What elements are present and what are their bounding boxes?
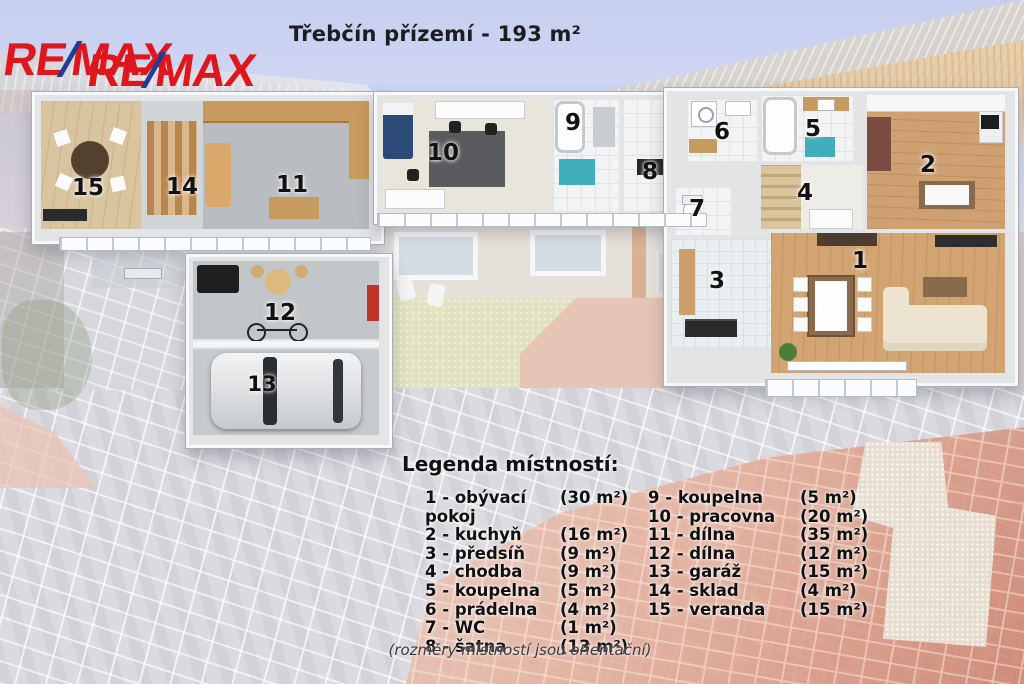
desk <box>435 101 525 119</box>
legend-area: (16 m²) <box>560 526 628 545</box>
desk <box>385 189 445 209</box>
legend-item: 15 - veranda(15 m²) <box>648 601 868 620</box>
legend-column-1: 1 - obývací pokoj(30 m²) 2 - kuchyň(16 m… <box>425 489 628 656</box>
washer-door <box>698 107 714 123</box>
sunroom-windows <box>378 214 706 226</box>
sofa <box>883 305 987 351</box>
legend-label: 10 - pracovna <box>648 508 800 527</box>
legend-label: 14 - sklad <box>648 582 800 601</box>
room-number-5: 5 <box>805 116 821 142</box>
legend-item: 3 - předsíň(9 m²) <box>425 545 628 564</box>
license-plate <box>124 268 162 279</box>
work-table <box>269 197 319 219</box>
red-cabinet <box>367 285 379 321</box>
small-table <box>265 269 291 295</box>
legend-item: 11 - dílna(35 m²) <box>648 526 868 545</box>
sideboard <box>817 233 877 246</box>
workbench-side <box>349 121 369 179</box>
legend-label: 11 - dílna <box>648 526 800 545</box>
room-number-11: 11 <box>276 172 308 198</box>
room-number-2: 2 <box>920 152 936 178</box>
legend-item: 1 - obývací pokoj(30 m²) <box>425 489 628 526</box>
plan-block-middle <box>186 254 392 448</box>
chair <box>53 129 71 147</box>
window <box>394 232 478 280</box>
legend-label: 12 - dílna <box>648 545 800 564</box>
office-chair <box>407 169 419 181</box>
room-koupelna-9 <box>553 99 619 211</box>
room-number-10: 10 <box>427 140 459 166</box>
sink <box>725 101 751 116</box>
legend-area: (5 m²) <box>800 489 857 508</box>
legend-area: (4 m²) <box>560 601 617 620</box>
chair <box>793 317 808 332</box>
plant <box>779 343 797 361</box>
legend-area: (9 m²) <box>560 545 617 564</box>
island-top <box>925 185 969 205</box>
room-garaz <box>193 349 379 435</box>
room-number-1: 1 <box>852 248 868 274</box>
room-number-3: 3 <box>709 268 725 294</box>
plan-block-upper <box>374 92 712 224</box>
hall-wardrobe <box>679 249 695 315</box>
room-number-7: 7 <box>689 196 705 222</box>
room-number-15: 15 <box>72 175 104 201</box>
wood-shelves <box>147 121 197 215</box>
cabinet-maroon <box>867 117 891 171</box>
disclaimer-note: (rozměry místností jsou orientační) <box>330 641 710 659</box>
room-pracovna <box>381 99 549 211</box>
legend-area: (9 m²) <box>560 563 617 582</box>
chair <box>857 297 872 312</box>
legend-area: (15 m²) <box>800 601 868 620</box>
workbench <box>203 101 369 123</box>
plan-block-left <box>32 92 384 244</box>
legend-item: 10 - pracovna(20 m²) <box>648 508 868 527</box>
legend-label: 6 - prádelna <box>425 601 560 620</box>
legend-label: 9 - koupelna <box>648 489 800 508</box>
sofa-tan <box>205 143 231 207</box>
legend-item: 2 - kuchyň(16 m²) <box>425 526 628 545</box>
legend-label: 15 - veranda <box>648 601 800 620</box>
kitchen-counter <box>867 95 1005 112</box>
room-number-14: 14 <box>166 174 198 200</box>
courtyard-photo <box>380 222 696 400</box>
legend-item: 6 - prádelna(4 m²) <box>425 601 628 620</box>
room-sklad <box>141 101 203 229</box>
page-title: Třebčín přízemí - 193 m² <box>270 22 600 46</box>
wall-divider <box>193 341 379 347</box>
terrace-window <box>787 361 907 371</box>
room-dilna-11 <box>203 101 369 229</box>
car-rear-window <box>333 359 343 423</box>
legend-label: 4 - chodba <box>425 563 560 582</box>
legend-label: 7 - WC <box>425 619 560 638</box>
bathtub <box>763 97 797 155</box>
room-number-6: 6 <box>714 119 730 145</box>
legend-item: 5 - koupelna(5 m²) <box>425 582 628 601</box>
machine-black <box>197 265 239 293</box>
office-chair <box>449 121 461 133</box>
shower-teal <box>559 159 595 185</box>
legend-item: 12 - dílna(12 m²) <box>648 545 868 564</box>
room-number-8: 8 <box>642 159 658 185</box>
legend-area: (4 m²) <box>800 582 857 601</box>
logo-max: MAX <box>152 44 259 96</box>
legend-area: (12 m²) <box>800 545 868 564</box>
chair <box>793 297 808 312</box>
legend-label: 2 - kuchyň <box>425 526 560 545</box>
room-obyvaci-pokoj <box>771 233 1005 373</box>
chair <box>110 176 127 193</box>
room-veranda <box>41 101 141 229</box>
legend-heading: Legenda místností: <box>402 452 619 476</box>
hall-closet <box>809 209 853 229</box>
tv-cabinet <box>935 235 997 247</box>
chair <box>55 173 73 191</box>
legend-column-2: 9 - koupelna(5 m²) 10 - pracovna(20 m²) … <box>648 489 868 619</box>
legend-item: 14 - sklad(4 m²) <box>648 582 868 601</box>
legend-item: 7 - WC(1 m²) <box>425 619 628 638</box>
bench-black <box>685 319 737 337</box>
legend-label: 3 - předsíň <box>425 545 560 564</box>
chair <box>857 277 872 292</box>
shrub-photo <box>2 300 92 410</box>
cooktop <box>981 115 999 129</box>
flyer: Třebčín přízemí - 193 m² RE/MAX RE/MAX <box>0 0 1024 684</box>
legend-area: (5 m²) <box>560 582 617 601</box>
chair <box>857 317 872 332</box>
stool <box>251 265 264 278</box>
room-number-12: 12 <box>264 300 296 326</box>
room-number-9: 9 <box>565 110 581 136</box>
legend-item: 4 - chodba(9 m²) <box>425 563 628 582</box>
office-chair <box>485 123 497 135</box>
remax-logo-copy: RE/MAX <box>85 47 258 93</box>
coffee-table <box>923 277 967 297</box>
legend-item: 9 - koupelna(5 m²) <box>648 489 868 508</box>
bench <box>43 209 87 221</box>
legend-label: 13 - garáž <box>648 563 800 582</box>
veranda-windows <box>60 238 370 250</box>
counter-wood <box>689 139 717 153</box>
stairs <box>761 165 801 229</box>
terrace <box>766 380 916 396</box>
window <box>530 230 606 276</box>
legend-area: (20 m²) <box>800 508 868 527</box>
sink <box>817 99 835 111</box>
legend-area: (35 m²) <box>800 526 868 545</box>
table-top <box>815 281 847 331</box>
legend-label: 1 - obývací pokoj <box>425 489 560 526</box>
chair <box>793 277 808 292</box>
legend-item: 13 - garáž(15 m²) <box>648 563 868 582</box>
chair <box>109 127 127 145</box>
legend-area: (1 m²) <box>560 619 617 638</box>
room-number-4: 4 <box>797 180 813 206</box>
pillow <box>383 103 413 115</box>
bicycle-frame <box>257 329 297 331</box>
legend-area: (30 m²) <box>560 489 628 526</box>
round-table <box>71 141 109 179</box>
bath-cabinet <box>593 107 615 147</box>
room-number-13: 13 <box>247 372 276 396</box>
legend-label: 5 - koupelna <box>425 582 560 601</box>
stool <box>295 265 308 278</box>
legend-area: (15 m²) <box>800 563 868 582</box>
